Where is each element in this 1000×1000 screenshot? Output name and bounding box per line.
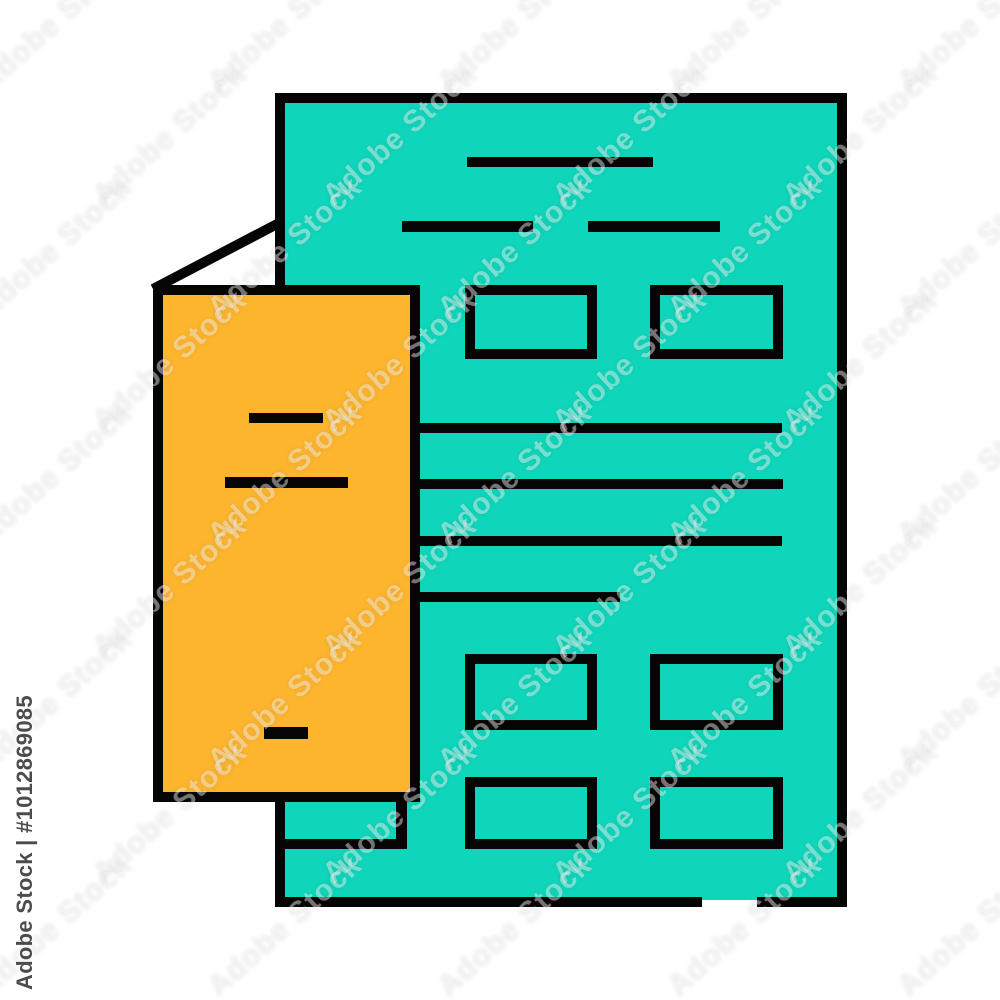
field-box-row2-right xyxy=(650,654,783,730)
adobe-stock-watermark-tile: Adobe Stock xyxy=(0,170,139,325)
bookmark-dash-3 xyxy=(264,727,308,739)
paragraph-line-2 xyxy=(412,479,783,489)
adobe-stock-watermark-tile: Adobe Stock xyxy=(431,0,598,100)
title-line xyxy=(467,157,653,167)
bookmark-dash-1 xyxy=(249,413,323,423)
adobe-stock-watermark-tile: Adobe Stock xyxy=(891,848,1000,1000)
adobe-stock-watermark-tile: Adobe Stock xyxy=(0,622,139,777)
adobe-stock-watermark-tile: Adobe Stock xyxy=(891,170,1000,325)
bookmark-dash-2 xyxy=(225,477,348,488)
adobe-stock-watermark-tile: Adobe Stock xyxy=(0,848,139,1000)
field-box-row1-right xyxy=(650,285,783,359)
adobe-stock-watermark-tile: Adobe Stock xyxy=(0,0,139,100)
adobe-stock-watermark-tile: Adobe Stock xyxy=(0,396,139,551)
subtitle-line-right xyxy=(588,221,720,232)
adobe-stock-watermark-tile: Adobe Stock xyxy=(86,57,253,212)
field-box-row3-left xyxy=(465,777,597,849)
bottom-border-gap xyxy=(702,900,757,908)
bookmark-card-shape xyxy=(153,285,420,802)
field-box-row3-right xyxy=(650,777,783,849)
adobe-stock-watermark-tile: Adobe Stock xyxy=(891,0,1000,100)
field-box-row1-left xyxy=(465,285,597,359)
adobe-stock-watermark-tile: Adobe Stock xyxy=(661,0,828,100)
paragraph-line-3 xyxy=(412,536,782,546)
field-box-row2-left xyxy=(465,654,597,730)
subtitle-line-left xyxy=(402,221,533,232)
adobe-stock-watermark-tile: Adobe Stock xyxy=(201,0,368,100)
stock-id-watermark: Adobe Stock | #1012869085 xyxy=(12,695,38,990)
hidden-box-bottom-edge xyxy=(283,839,407,849)
adobe-stock-watermark-tile: Adobe Stock xyxy=(891,622,1000,777)
adobe-stock-watermark-tile: Adobe Stock xyxy=(891,396,1000,551)
paragraph-line-4 xyxy=(412,592,620,602)
icon-canvas: Adobe StockAdobe StockAdobe StockAdobe S… xyxy=(0,0,1000,1000)
paragraph-line-1 xyxy=(412,423,782,433)
